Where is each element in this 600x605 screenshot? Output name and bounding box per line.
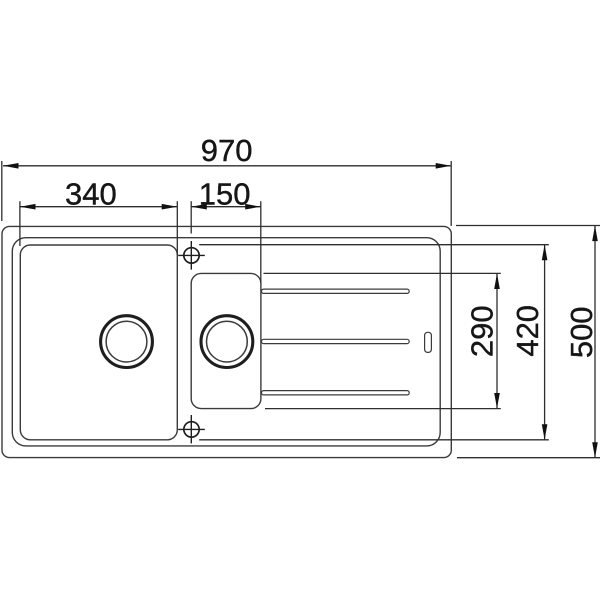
svg-text:420: 420 [510,305,545,357]
svg-text:290: 290 [464,305,499,357]
svg-text:970: 970 [201,133,253,168]
svg-text:500: 500 [564,306,599,358]
svg-text:340: 340 [65,176,117,211]
svg-text:150: 150 [199,176,251,211]
